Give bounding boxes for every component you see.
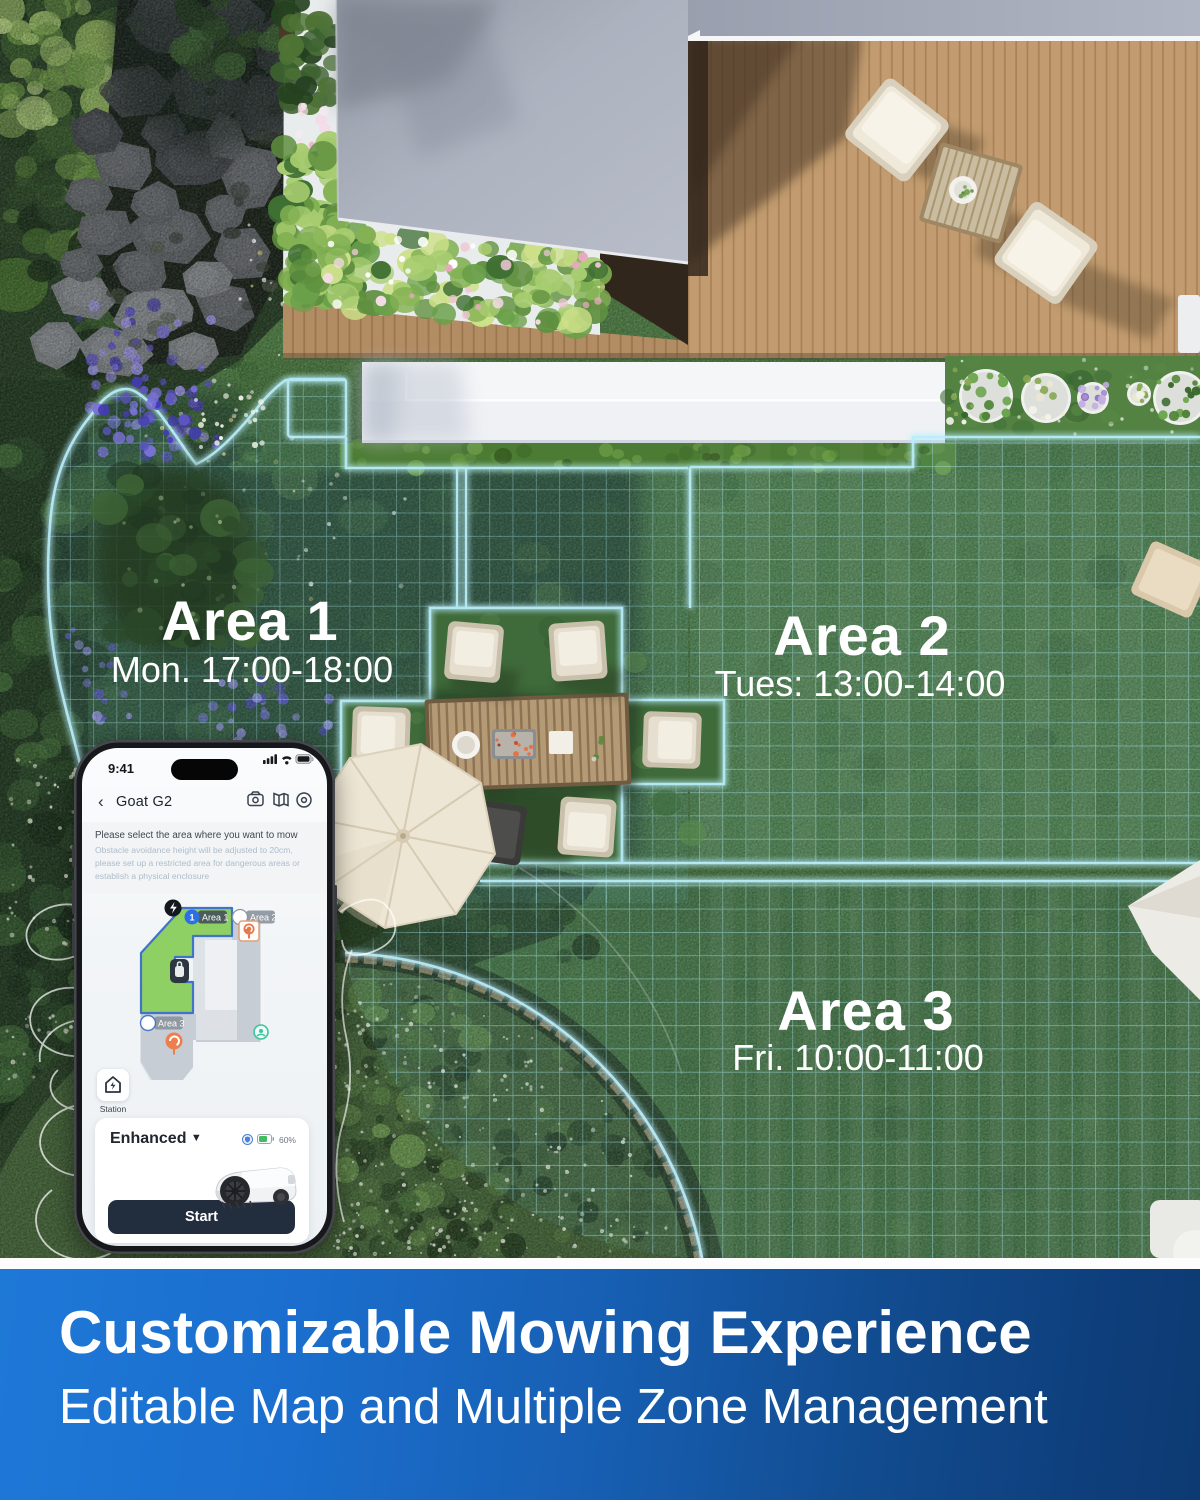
svg-text:Area 1: Area 1: [202, 913, 229, 923]
svg-text:Area 3: Area 3: [158, 1019, 185, 1029]
svg-text:1: 1: [190, 913, 195, 923]
